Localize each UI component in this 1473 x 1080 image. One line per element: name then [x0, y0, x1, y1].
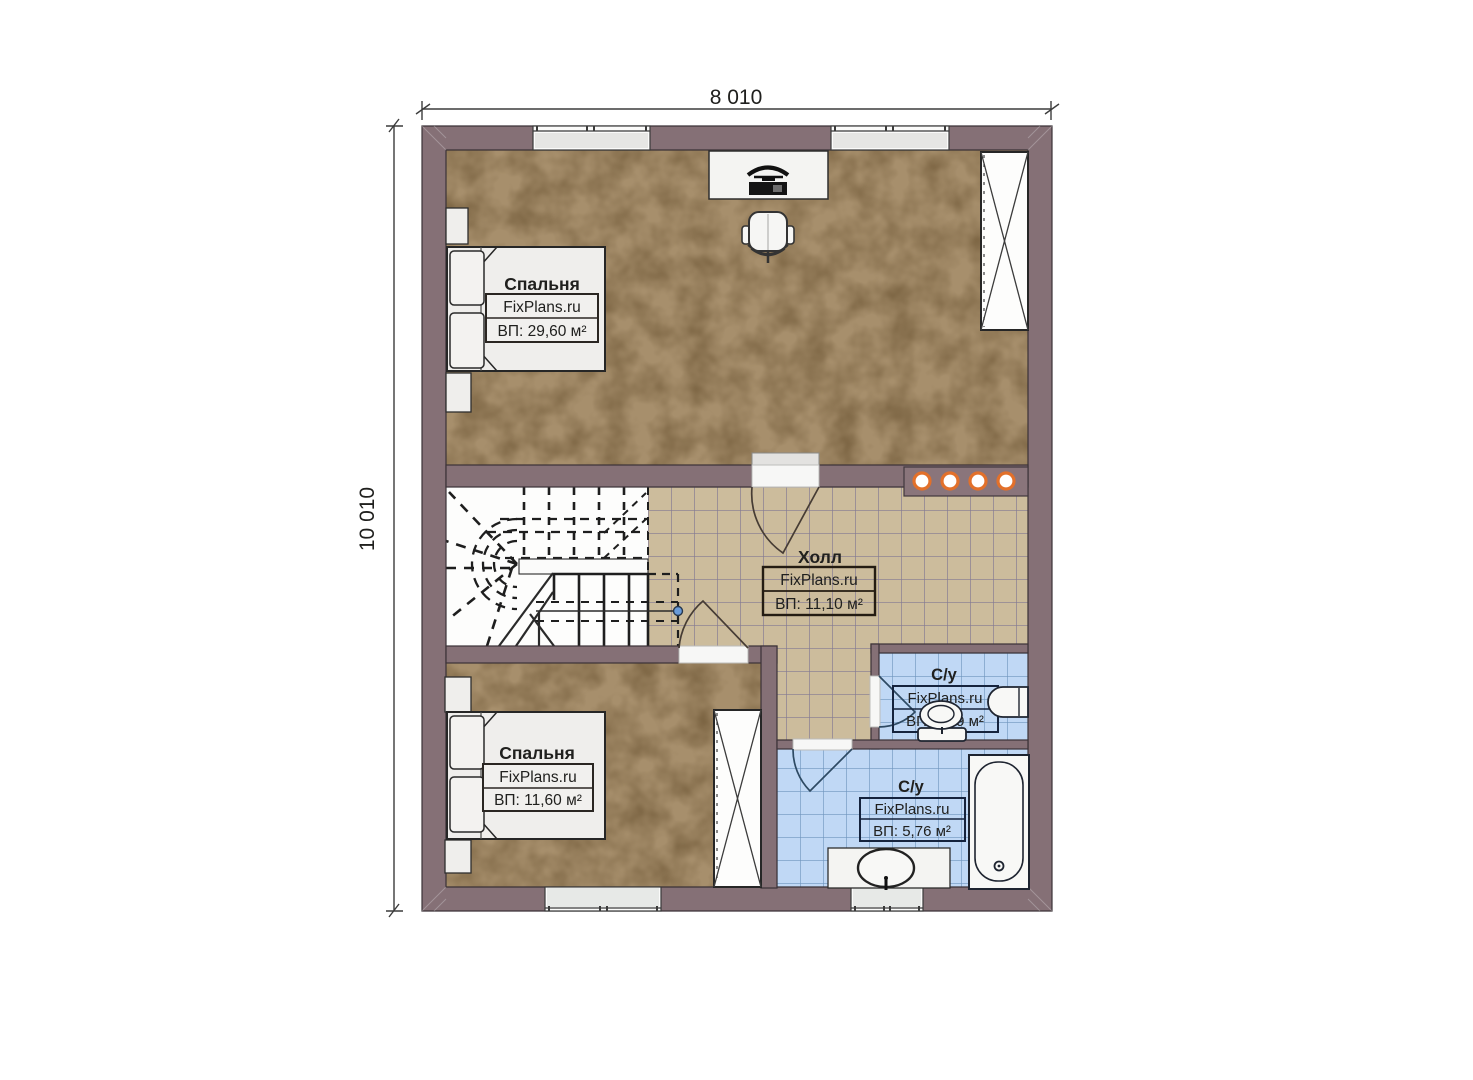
- svg-text:Холл: Холл: [798, 547, 842, 567]
- svg-text:FixPlans.ru: FixPlans.ru: [780, 572, 858, 589]
- svg-text:Спальня: Спальня: [504, 274, 580, 294]
- svg-text:FixPlans.ru: FixPlans.ru: [503, 299, 581, 316]
- svg-text:ВП: 5,76 м²: ВП: 5,76 м²: [873, 823, 951, 840]
- svg-text:С/у: С/у: [898, 778, 925, 796]
- svg-text:С/у: С/у: [931, 666, 958, 684]
- svg-text:8 010: 8 010: [710, 86, 763, 109]
- svg-text:10 010: 10 010: [356, 487, 379, 551]
- svg-text:FixPlans.ru: FixPlans.ru: [874, 801, 949, 818]
- svg-text:ВП: 11,10 м²: ВП: 11,10 м²: [775, 596, 863, 613]
- svg-text:Спальня: Спальня: [499, 743, 575, 763]
- svg-text:ВП: 29,60 м²: ВП: 29,60 м²: [497, 323, 586, 340]
- svg-text:FixPlans.ru: FixPlans.ru: [499, 769, 577, 786]
- svg-text:ВП: 11,60 м²: ВП: 11,60 м²: [494, 792, 582, 809]
